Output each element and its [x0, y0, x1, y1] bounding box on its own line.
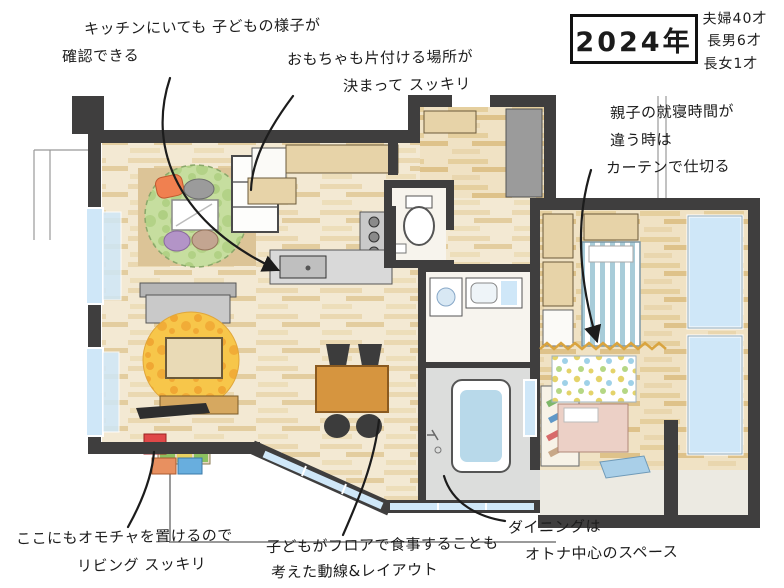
faucet [306, 266, 311, 271]
note-toy-place-line1: おもちゃも片付ける場所が [287, 47, 473, 68]
floor-plan-illustration: キッチンにいても 子どもの様子が 確認できる おもちゃも片付ける場所が 決まって… [0, 0, 784, 588]
note-dining-adult-line1: ダイニングは [508, 517, 601, 537]
note-living-toys-line2: リビング スッキリ [77, 555, 207, 575]
leader-living-toys [128, 452, 154, 527]
vanity-mirror [500, 280, 518, 306]
dining-chair [324, 414, 350, 438]
living-window-pane [103, 352, 119, 432]
bath-window [524, 380, 536, 436]
genkan-step [506, 109, 542, 197]
entry-door-gap [452, 95, 490, 107]
closet-box [543, 214, 573, 258]
family-info: 夫婦40才 長男6才 長女1才 [702, 7, 768, 75]
kids-window-pane [103, 212, 121, 300]
kitchen-island [248, 178, 296, 204]
note-curtain-line3: カーテンで仕切る [606, 157, 730, 177]
note-living-toys-line1: ここにもオモチャを置けるので [16, 526, 233, 548]
family-son: 長男6才 [703, 30, 768, 54]
note-curtain-line2: 違う時は [610, 130, 672, 149]
bedroom-window [688, 216, 742, 328]
bathtub-water [460, 390, 502, 462]
closet-box [543, 310, 573, 346]
bed-headboard [584, 214, 638, 240]
note-kitchen-view-line2: 確認できる [62, 46, 140, 65]
vanity-sink [471, 283, 497, 303]
toilet [404, 207, 434, 245]
shoe-cabinet [424, 111, 476, 133]
baby-bed-pillow [564, 408, 598, 422]
living-window [86, 348, 103, 436]
bedroom-window [688, 336, 742, 454]
year-badge: 2024年 [570, 14, 698, 64]
closet-box [543, 262, 573, 306]
kitchen-sink [280, 256, 326, 278]
low-table [166, 338, 222, 378]
dining-chair [358, 344, 382, 366]
kitchen-cabinet [286, 145, 398, 173]
kids-window [86, 208, 103, 304]
child-bed-quilt [552, 356, 636, 402]
note-floor-dining-line2: 考えた動線&レイアウト [271, 561, 438, 582]
dining-table [316, 366, 388, 412]
note-dining-adult-line2: オトナ中心のスペース [525, 543, 678, 564]
family-daughter: 長女1才 [703, 52, 768, 76]
year-label: 2024年 [575, 20, 692, 59]
family-couple: 夫婦40才 [702, 7, 767, 31]
dining-chair [326, 344, 350, 366]
parent-bed-pillow [589, 246, 633, 262]
bedroom-balcony-floor [540, 470, 748, 515]
note-toy-place-line2: 決まって スッキリ [343, 75, 471, 95]
note-curtain-line1: 親子の就寝時間が [610, 102, 734, 122]
